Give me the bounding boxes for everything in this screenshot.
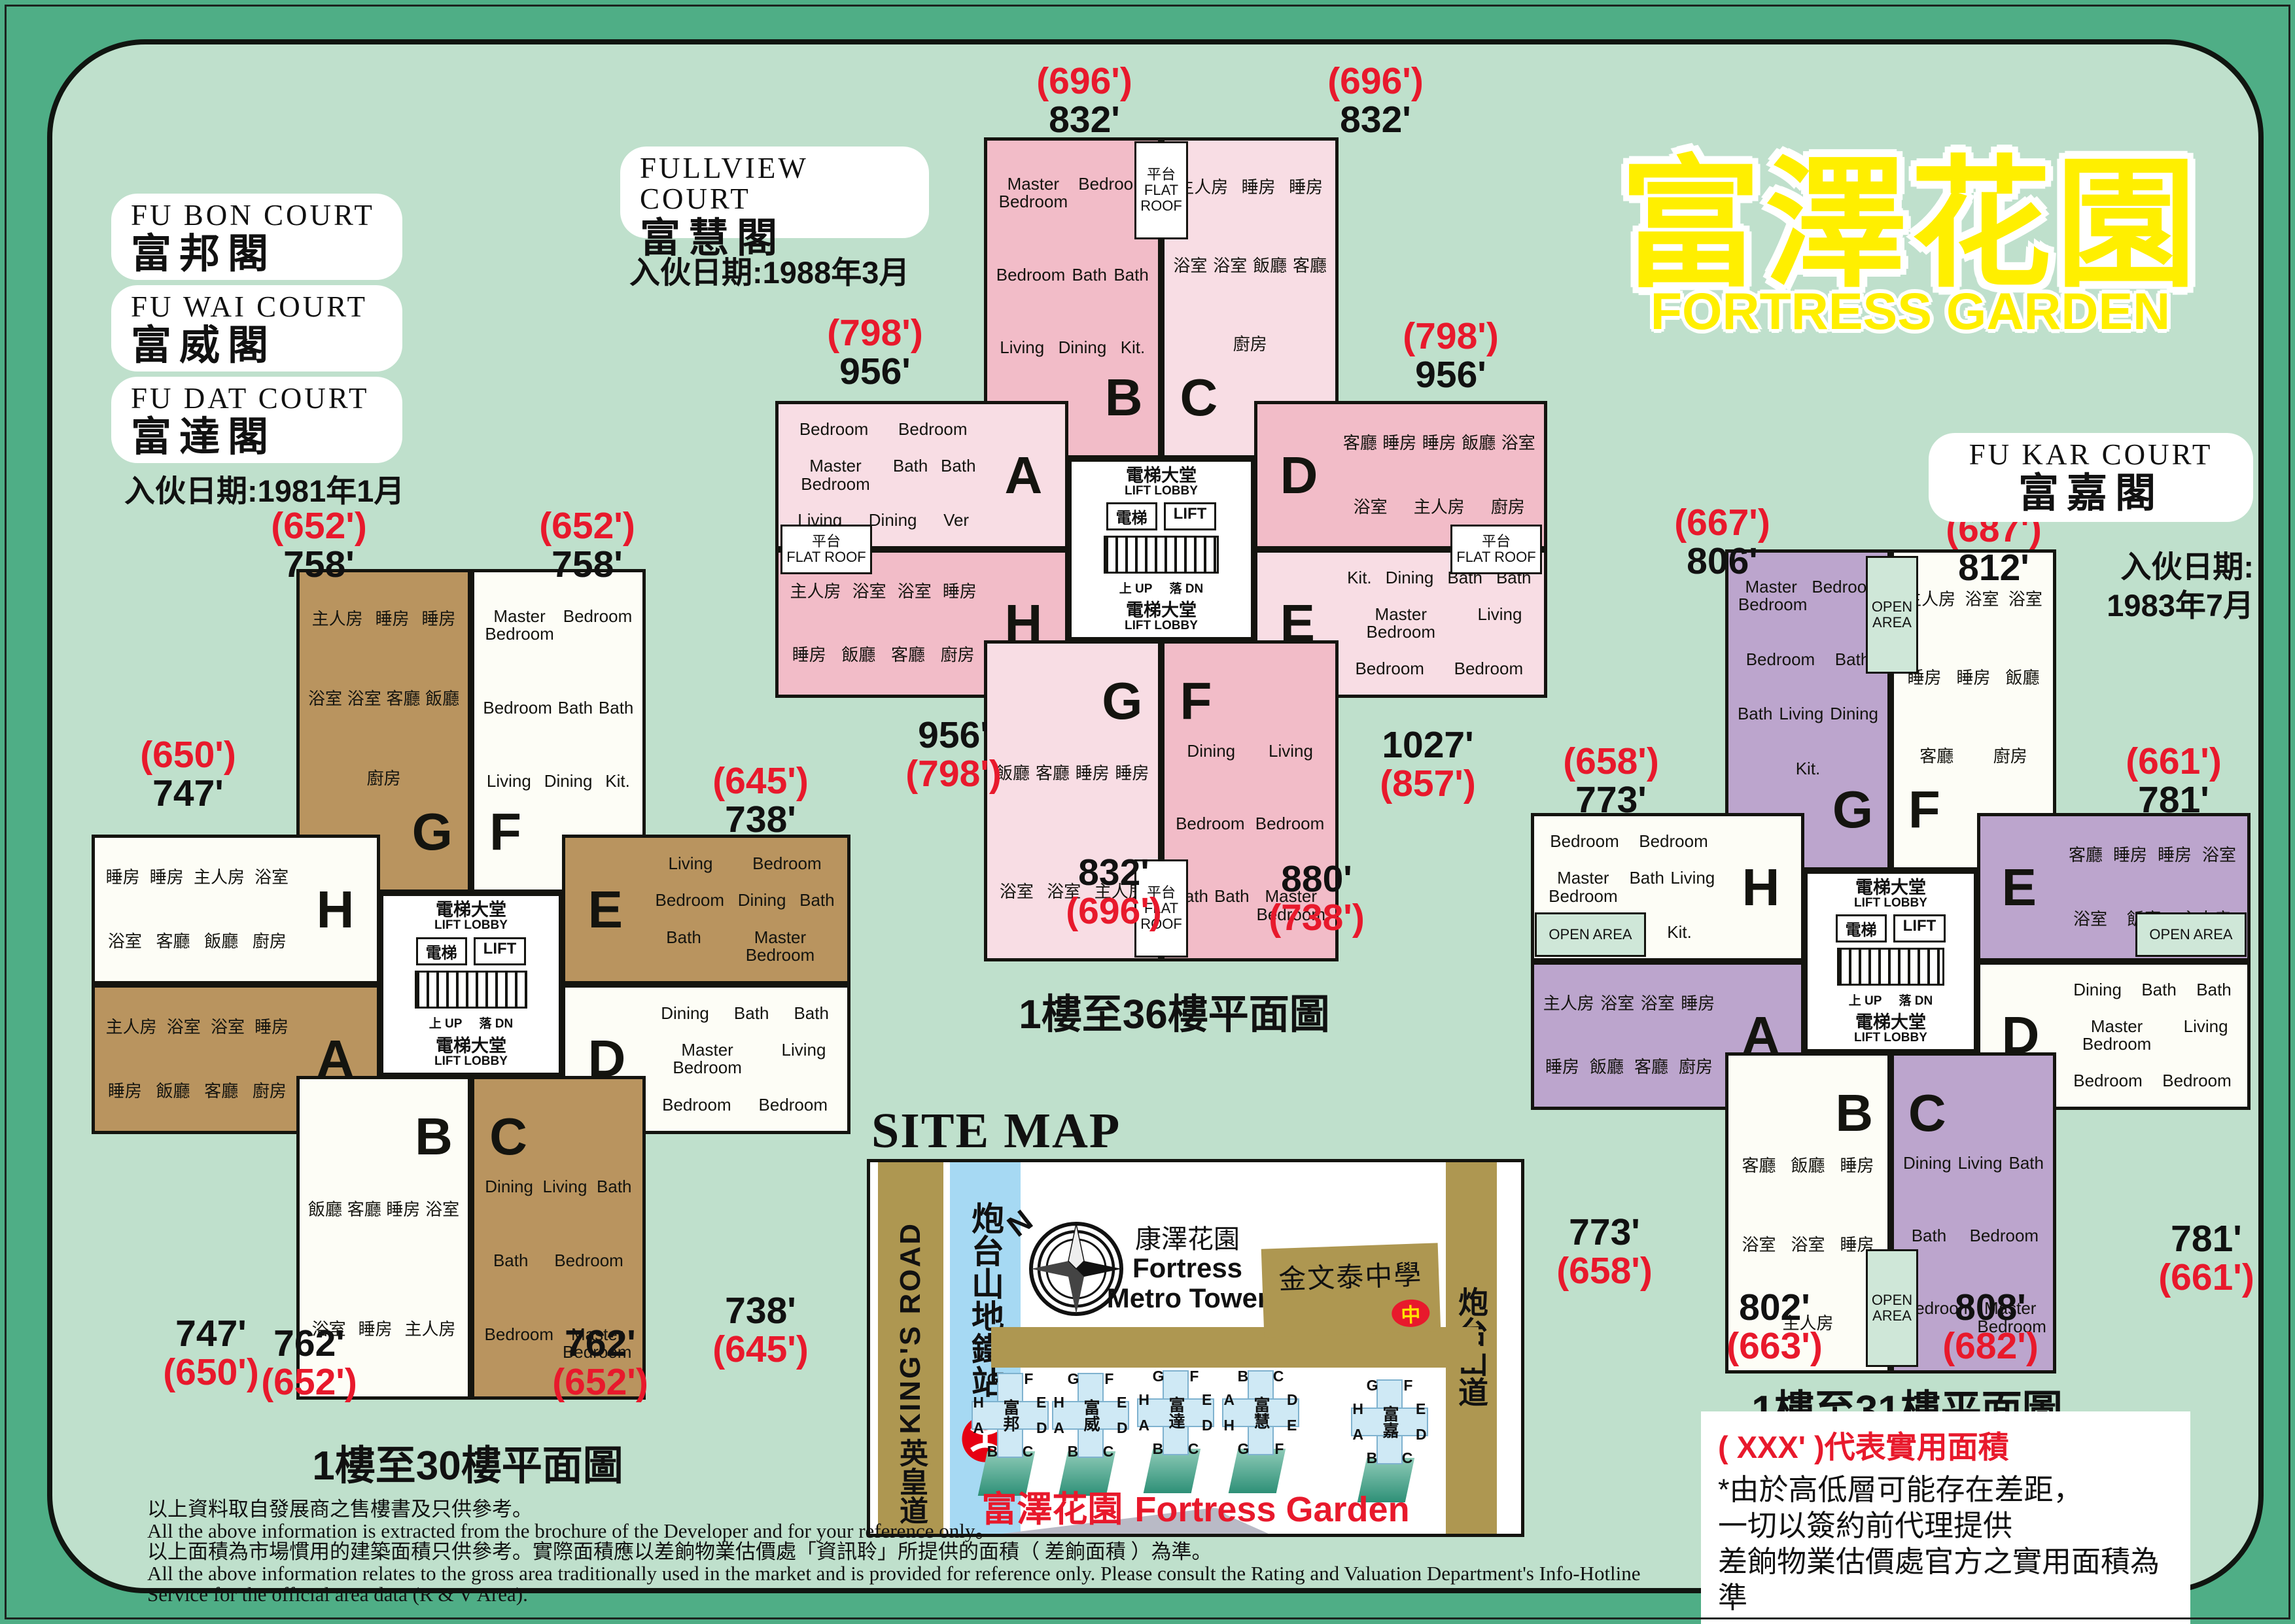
wing-letter: G [1102, 675, 1142, 727]
room-item: 睡房 [1956, 669, 1990, 687]
room-item: 浴室 [1600, 995, 1634, 1012]
room-item: Bedroom [1639, 833, 1708, 850]
room-item: Bath [1214, 888, 1250, 924]
tlt-item: A [1223, 1392, 1235, 1408]
room-item: 主人房 [790, 583, 841, 600]
lift-boxes: 電梯LIFT [1836, 914, 1946, 942]
room-item: 睡房 [1840, 1157, 1874, 1175]
area-label: 762'(652') [239, 1324, 379, 1402]
open-area-strip: OPEN AREA [2135, 912, 2247, 957]
wing-letter: C [1908, 1087, 1946, 1139]
fp-line-item: 以上面積為市場慣用的建築面積只供參考。實際面積應以差餉物業估價處「資訊聆」所提供… [147, 1542, 1678, 1563]
court-name-en: FU KAR COURT [1929, 440, 2253, 470]
room-item: 睡房 [943, 583, 977, 600]
room-item: Bath [2009, 1154, 2044, 1172]
area-label: (696')832' [1014, 62, 1155, 140]
flat-roof-strip: 平台FLAT ROOF [780, 525, 872, 574]
date-label: 入伙日期: [2120, 549, 2254, 584]
room-item: Dining [1830, 705, 1878, 723]
room-item: 浴室 [1173, 257, 1207, 275]
room-item: 廚房 [367, 770, 401, 787]
tlt-item: D [1036, 1421, 1047, 1436]
al-line-item: (661') [2136, 1258, 2277, 1297]
lift-boxes: 電梯LIFT [416, 937, 527, 965]
room-item: Bath [597, 1178, 632, 1196]
area-label: 773'(658') [1534, 1213, 1675, 1291]
al-line-item: 808' [1920, 1288, 2061, 1327]
room-item: 主人房 [1414, 498, 1465, 516]
stair-directions: 上 UP落 DN [1849, 991, 1933, 1009]
room-item: 客廳 [1919, 748, 1953, 765]
tlt-item: B [1367, 1451, 1378, 1466]
lift-lobby-label: 電梯大堂LIFT LOBBY [434, 1037, 508, 1067]
room-item: Bath [1629, 869, 1664, 905]
tower-wing-letters: HA [1053, 1395, 1064, 1436]
wing-letter: H [1742, 861, 1780, 914]
occupation-date-1981: 入伙日期:1981年1月 [124, 466, 404, 511]
lift-lobby-label: 電梯大堂LIFT LOBBY [1854, 1014, 1927, 1044]
room-item: 浴室 [1965, 591, 1999, 608]
al-line-item: 781' [2136, 1220, 2277, 1258]
tower-wing-letters: GF [987, 1372, 1034, 1387]
area-label: 1027'(857') [1358, 726, 1498, 804]
tower-wing-letters: DE [1287, 1392, 1298, 1433]
room-item: Bath [1072, 266, 1108, 284]
room-item: Master Bedroom [664, 1041, 751, 1077]
wing-letter: C [1180, 371, 1218, 424]
area-label: (650')747' [118, 736, 258, 814]
al-line-item: (696') [1043, 892, 1184, 931]
tlt-item: G [1367, 1378, 1378, 1393]
tower-name: 富慧 [1249, 1396, 1272, 1429]
disclaimer-text: 以上資料取自發展商之售樓書及只供參考。All the above informa… [147, 1499, 1678, 1606]
al-line-item: 956' [1380, 356, 1521, 394]
room-item: Dining [1903, 1154, 1952, 1172]
lift-lobby-label: 電梯大堂LIFT LOBBY [434, 901, 508, 931]
tower-fu-kar: GF HA ED BC 富嘉 [1351, 1379, 1428, 1464]
wing-letter: H [317, 884, 355, 936]
room-item: 浴室 [1501, 434, 1535, 452]
mtr-station-label: 炮台山地鐵站 [962, 1201, 1009, 1398]
room-item: Bath [1738, 705, 1773, 723]
school-label: 金文泰中學 [1261, 1252, 1439, 1298]
area-label: 956'(798') [883, 716, 1024, 794]
area-label: 762'(652') [530, 1324, 671, 1402]
room-item: Kit. [1796, 760, 1821, 778]
room-item: 睡房 [2113, 846, 2147, 864]
room-item: 浴室 [852, 583, 886, 600]
court-box-fu-kar: FU KAR COURT 富嘉閣 [1929, 433, 2253, 522]
room-item: 主人房 [194, 869, 245, 886]
tower-fu-bon: GF HA ED BC 富邦 [972, 1373, 1049, 1458]
room-item: 客廳 [386, 690, 420, 708]
room-item: Bath [558, 699, 593, 717]
room-item: 客廳 [156, 933, 190, 950]
note-red-line: ( XXX' )代表實用面積 [1718, 1422, 2173, 1467]
fortress-metro-tower-label: 康澤花園 Fortress Metro Tower [1086, 1225, 1289, 1313]
stairs [1104, 536, 1219, 574]
al-line-item: (663') [1704, 1327, 1845, 1366]
room-item: 睡房 [1076, 765, 1110, 782]
room-item: 飯廳 [1791, 1157, 1825, 1175]
wing-letter: C [489, 1111, 527, 1163]
al-line-item: (798') [883, 755, 1024, 793]
tlt-item: F [1104, 1372, 1113, 1387]
room-item: 飯廳 [204, 933, 238, 950]
room-item: Living [1478, 606, 1522, 642]
room-item: Bath [941, 457, 976, 493]
fp-line-item: All the above information relates to the… [147, 1563, 1678, 1606]
tower-wing-letters: BC [987, 1444, 1034, 1459]
area-note-box: ( XXX' )代表實用面積 *由於高低層可能存在差距，一切以簽約前代理提供差餉… [1701, 1411, 2190, 1624]
tower-wing-letters: BC [1068, 1444, 1114, 1459]
tower-wing-letters: AH [1223, 1392, 1235, 1433]
nb-line-item: 一切以簽約前代理提供 [1718, 1508, 2173, 1544]
al-line-item: 758' [249, 545, 389, 584]
metro-tower-en2: Metro Tower [1086, 1283, 1289, 1313]
room-item: Dining [544, 772, 593, 790]
tlt-item: H [1352, 1402, 1363, 1417]
room-item: 睡房 [2158, 846, 2192, 864]
court-name-en: FU BON COURT [131, 200, 402, 231]
tlt-item: D [1117, 1421, 1128, 1436]
wing-letter: B [415, 1111, 453, 1163]
wing-letter: G [412, 806, 453, 858]
room-item: Bedroom [996, 266, 1066, 284]
stair-directions: 上 UP落 DN [1119, 579, 1203, 596]
room-item: 客廳 [891, 646, 925, 664]
room-item: Bath [1113, 266, 1149, 284]
room-item: Kit. [1121, 339, 1146, 356]
al-line-item: 832' [1305, 101, 1446, 139]
room-item: Living [782, 1041, 826, 1077]
room-item: Bath [599, 699, 634, 717]
court-name-en: FU WAI COURT [131, 292, 402, 322]
tlt-item: B [987, 1444, 998, 1459]
room-item: Bedroom [898, 421, 968, 438]
stair-directions: 上 UP落 DN [429, 1014, 513, 1031]
room-item: 睡房 [1382, 434, 1416, 452]
area-label: 802'(663') [1704, 1288, 1845, 1366]
tlt-item: F [1189, 1369, 1199, 1384]
room-item: 廚房 [1679, 1058, 1713, 1076]
court-name-zh: 富達閣 [131, 414, 402, 460]
room-item: 浴室 [1000, 883, 1034, 901]
al-line-item: (645') [690, 1330, 831, 1369]
court-box-fu-dat: FU DAT COURT 富達閣 [111, 377, 402, 463]
room-item: 浴室 [1742, 1236, 1776, 1254]
tower-wing-letters: GF [1068, 1372, 1114, 1387]
tower-name: 富嘉 [1378, 1406, 1401, 1438]
room-item: Living [487, 772, 531, 790]
wing-H: 睡房睡房主人房浴室浴室客廳飯廳廚房 H [92, 835, 380, 984]
room-item: 睡房 [792, 646, 826, 664]
flat-roof-strip: 平台FLAT ROOF [1450, 525, 1542, 574]
room-item: Bedroom [1355, 660, 1424, 678]
al-line-item: (696') [1014, 62, 1155, 101]
al-line-item: 773' [1534, 1213, 1675, 1252]
room-item: Dining [2073, 981, 2122, 999]
tlt-item: G [1153, 1369, 1165, 1384]
open-area-strip: OPEN AREA [1866, 1249, 1918, 1367]
tlt-item: A [1138, 1418, 1149, 1433]
al-line-item: 1027' [1358, 726, 1498, 765]
tower-fu-wai: GF HA ED BC 富威 [1052, 1373, 1129, 1458]
tower-wing-letters: GF [1238, 1442, 1284, 1457]
area-label: (696')832' [1305, 62, 1446, 140]
room-item: Bedroom [1970, 1227, 2036, 1245]
tlt-item: F [1274, 1442, 1284, 1457]
tlt-item: F [1403, 1378, 1412, 1393]
tlt-item: C [1023, 1444, 1034, 1459]
al-line-item: 781' [2103, 781, 2244, 820]
al-line-item: 832' [1043, 854, 1184, 892]
room-item: Dining [869, 511, 917, 529]
wing-letter: E [588, 884, 623, 936]
tlt-item: D [1202, 1418, 1213, 1433]
court-name-zh: 富威閣 [131, 322, 402, 369]
al-line-item: (652') [530, 1363, 671, 1402]
room-item: Bedroom [759, 1096, 828, 1114]
tlt-item: B [1068, 1444, 1079, 1459]
kings-road: KING'S ROAD 英皇道 [878, 1162, 943, 1534]
tlt-item: D [1287, 1392, 1298, 1408]
room-item: 廚房 [1491, 498, 1525, 516]
room-item: 睡房 [386, 1201, 420, 1218]
al-line-item: 832' [1014, 101, 1155, 139]
al-line-item: 758' [517, 545, 657, 584]
open-area-strip: OPEN AREA [1535, 912, 1646, 957]
al-line-item: (682') [1920, 1327, 2061, 1366]
room-item: Bath [1835, 651, 1870, 668]
room-item: 飯廳 [2005, 669, 2039, 687]
room-item: 客廳 [2069, 846, 2103, 864]
room-item: 浴室 [2202, 846, 2236, 864]
room-item: Dining [1059, 339, 1107, 356]
room-item: 浴室 [254, 869, 289, 886]
area-label: (661')781' [2103, 742, 2244, 820]
room-item: 睡房 [376, 610, 410, 628]
room-item: Bedroom [1176, 815, 1245, 833]
wing-letter: B [1835, 1087, 1873, 1139]
area-label: 781'(661') [2136, 1220, 2277, 1298]
room-item: Dining [1386, 569, 1434, 587]
al-line-item: 802' [1704, 1288, 1845, 1327]
court-box-fu-wai: FU WAI COURT 富威閣 [111, 285, 402, 371]
room-item: Living [2184, 1018, 2228, 1054]
room-item: Bedroom [1746, 651, 1812, 668]
room-item: Kit. [1347, 569, 1372, 587]
room-item: Bedroom [1454, 660, 1524, 678]
al-line-item: 806' [1652, 542, 1793, 581]
room-item: 睡房 [421, 610, 455, 628]
area-label: (652')758' [517, 507, 657, 585]
court-name-en: FU DAT COURT [131, 383, 402, 414]
occupation-date-1983: 入伙日期: 1983年7月 [2028, 548, 2254, 625]
plan-caption: 1樓至36樓平面圖 [972, 981, 1377, 1040]
room-item: 睡房 [1242, 179, 1276, 196]
date-value: 1983年7月 [2107, 588, 2254, 623]
tlt-item: A [1352, 1427, 1363, 1442]
room-item: 客廳 [1343, 434, 1377, 452]
tower-wing-letters: HA [1138, 1392, 1149, 1433]
note-lines: *由於高低層可能存在差距，一切以簽約前代理提供差餉物業估價處官方之實用面積為準 [1718, 1472, 2173, 1616]
room-item: 睡房 [1422, 434, 1456, 452]
flat-roof-strip: 平台FLAT ROOF [1134, 141, 1188, 239]
room-item: 浴室 [211, 1018, 245, 1036]
tower-wing-letters: ED [1416, 1402, 1427, 1442]
area-label: 738'(645') [690, 1292, 831, 1370]
wing-letter: G [1832, 784, 1873, 836]
tlt-item: E [1416, 1402, 1427, 1417]
court-name-zh: 富嘉閣 [1929, 470, 2253, 517]
room-item: 睡房 [1681, 995, 1715, 1012]
tlt-item: C [1103, 1444, 1114, 1459]
tower-wing-letters: GF [1153, 1369, 1199, 1384]
room-item: 客廳 [347, 1201, 381, 1218]
room-item: Bath [893, 457, 928, 493]
room-item: 飯廳 [841, 646, 875, 664]
lift-lobby-label: 電梯大堂LIFT LOBBY [1854, 879, 1927, 909]
room-item: Dining [485, 1178, 533, 1196]
room-item: Living [1958, 1154, 2003, 1172]
room-item: Living [543, 1178, 587, 1196]
room-item: Bedroom [1550, 833, 1619, 850]
room-item: 浴室 [898, 583, 932, 600]
room-item: 客廳 [204, 1082, 238, 1100]
room-item: Bedroom [656, 891, 725, 909]
room-item: 浴室 [1791, 1236, 1825, 1254]
room-item: Master Bedroom [1738, 578, 1804, 614]
room-item: 主人房 [106, 1018, 157, 1036]
room-item: Bedroom [483, 699, 552, 717]
room-item: Bath [794, 1005, 829, 1022]
room-item: 睡房 [106, 869, 140, 886]
al-line-item: 747' [118, 774, 258, 813]
tlt-item: C [1273, 1369, 1284, 1384]
al-line-item: (798') [805, 314, 945, 353]
room-item: Bath [493, 1252, 529, 1270]
metro-tower-en1: Fortress [1086, 1253, 1289, 1283]
al-line-item: 773' [1541, 781, 1681, 820]
lift-core: 電梯大堂LIFT LOBBY 電梯LIFT 上 UP落 DN 電梯大堂LIFT … [1804, 871, 1977, 1052]
al-line-item: 880' [1246, 860, 1387, 899]
al-line-item: 956' [805, 353, 945, 391]
tlt-item: G [1068, 1372, 1079, 1387]
al-line-item: (738') [1246, 899, 1387, 937]
al-line-item: 956' [883, 716, 1024, 755]
fp-line-item: All the above information is extracted f… [147, 1521, 1678, 1542]
tower-wing-letters: HA [973, 1395, 984, 1436]
tlt-item: B [1153, 1442, 1164, 1457]
nb-line-item: 差餉物業估價處官方之實用面積為準 [1718, 1544, 2173, 1616]
room-item: 主人房 [404, 1321, 455, 1338]
room-item: Living [1670, 869, 1715, 905]
room-item: Master Bedroom [1543, 869, 1623, 905]
area-label: (798')956' [805, 314, 945, 392]
tlt-item: A [973, 1421, 984, 1436]
metro-tower-zh: 康澤花園 [1086, 1225, 1289, 1253]
area-label: (798')956' [1380, 317, 1521, 395]
fp-line-item: 以上資料取自發展商之售樓書及只供參考。 [147, 1499, 1678, 1521]
room-item: 廚房 [253, 1082, 287, 1100]
tower-fu-dat: GF HA ED BC 富達 [1137, 1370, 1214, 1455]
room-item: Bath [734, 1005, 769, 1022]
al-line-item: (652') [239, 1363, 379, 1402]
al-line-item: (652') [249, 507, 389, 545]
room-item: Master Bedroom [1356, 606, 1445, 642]
tower-name: 富威 [1079, 1399, 1102, 1432]
room-item: Master Bedroom [791, 457, 880, 493]
court-box-fullview: FULLVIEW COURT 富慧閣 [620, 147, 929, 238]
area-label: (658')773' [1541, 742, 1681, 820]
room-item: Bath [2141, 981, 2177, 999]
tower-fullview: BC AH DE GF 富慧 [1222, 1370, 1299, 1455]
tlt-item: F [1024, 1372, 1033, 1387]
al-line-item: (661') [2103, 742, 2244, 781]
tlt-item: G [1238, 1442, 1250, 1457]
room-item: Bedroom [1255, 815, 1325, 833]
room-item: 睡房 [1289, 179, 1323, 196]
room-item: Master Bedroom [2076, 1018, 2156, 1054]
room-item: Master Bedroom [998, 175, 1069, 211]
room-item: Bedroom [563, 608, 633, 644]
al-line-item: 738' [690, 1292, 831, 1330]
wing-letter: D [1280, 449, 1318, 502]
court-name-zh: 富邦閣 [131, 231, 402, 277]
tlt-item: H [973, 1395, 984, 1410]
room-item: Dining [661, 1005, 709, 1022]
room-item: 睡房 [1115, 765, 1149, 782]
room-item: Bedroom [2073, 1072, 2143, 1090]
stairs [415, 971, 528, 1009]
room-item: 飯廳 [1462, 434, 1496, 452]
tower-name: 富邦 [998, 1399, 1022, 1432]
tower-name: 富達 [1164, 1396, 1187, 1429]
tower-wing-letters: BC [1153, 1442, 1199, 1457]
access-road [991, 1327, 1479, 1368]
court-name-en: FULLVIEW COURT [640, 153, 929, 215]
area-label: 808'(682') [1920, 1288, 2061, 1366]
room-item: 睡房 [108, 1082, 142, 1100]
room-item: Living [1779, 705, 1823, 723]
room-item: 浴室 [108, 933, 142, 950]
wing-letter: F [1180, 675, 1212, 727]
room-item: 浴室 [1354, 498, 1388, 516]
tower-wing-letters: ED [1036, 1395, 1047, 1436]
room-item: Living [669, 855, 713, 872]
room-item: 睡房 [254, 1018, 289, 1036]
room-item: 客廳 [1634, 1058, 1668, 1076]
plan-caption: 1樓至30樓平面圖 [265, 1432, 671, 1491]
tlt-item: G [987, 1372, 999, 1387]
wing-letter: F [1908, 784, 1940, 836]
al-line-item: (696') [1305, 62, 1446, 101]
al-line-item: (667') [1652, 504, 1793, 542]
room-item: Kit. [605, 772, 630, 790]
tlt-item: A [1053, 1421, 1064, 1436]
room-item: 客廳 [1293, 257, 1327, 275]
room-item: 客廳 [1036, 765, 1070, 782]
tower-wing-letters: HA [1352, 1402, 1363, 1442]
page-subtitle: FORTRESS GARDEN [1567, 281, 2254, 341]
wing-letter: B [1105, 371, 1143, 424]
al-line-item: (658') [1541, 742, 1681, 781]
al-line-item: (652') [517, 507, 657, 545]
room-item: Master Bedroom [485, 608, 555, 644]
court-box-fu-bon: FU BON COURT 富邦閣 [111, 194, 402, 280]
room-item: Dining [1187, 742, 1235, 760]
